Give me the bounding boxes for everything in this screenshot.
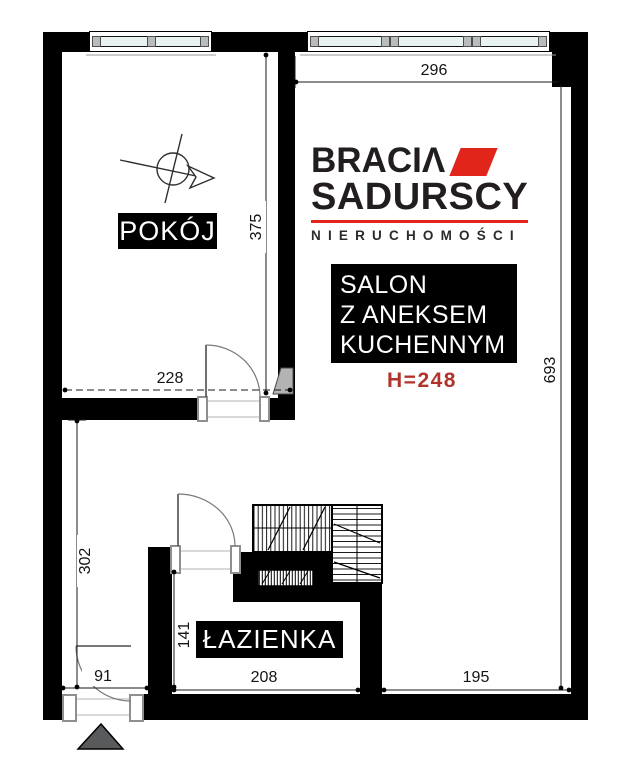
door-jamb-room1-right	[259, 396, 270, 422]
door-jamb-entry-right	[129, 694, 144, 722]
window-mullion	[381, 36, 390, 47]
window-salon-glass	[310, 36, 547, 47]
dim-room1-height: 375	[248, 201, 266, 253]
salon-label: SALON Z ANEKSEM KUCHENNYM	[331, 264, 517, 363]
window-salon	[307, 31, 550, 52]
room1-label-text: POKÓJ	[119, 216, 216, 247]
dim-bathroom-width: 208	[236, 669, 292, 687]
wall-bottom	[144, 694, 588, 720]
salon-label-line3: KUCHENNYM	[340, 330, 517, 360]
logo-line1-text: BRACIΛ	[311, 142, 445, 179]
entry-arrow-icon	[78, 724, 123, 749]
dim-bathroom-height: 141	[176, 610, 194, 660]
door-jamb-room1-left	[197, 396, 208, 422]
agency-logo: BRACIΛ SADURSCY NIERUCHOMOŚCI	[311, 142, 528, 243]
bathroom-label: ŁAZIENKA	[196, 621, 343, 658]
logo-line2: SADURSCY	[311, 179, 528, 216]
dim-room1-width: 228	[146, 370, 194, 388]
dim-hall-height: 302	[77, 535, 95, 587]
logo-line1: BRACIΛ	[311, 142, 528, 179]
window-cap	[310, 36, 319, 47]
room1-label: POKÓJ	[118, 213, 217, 249]
door-jamb-bathroom-right	[230, 545, 241, 574]
window-mullion	[147, 36, 156, 47]
window-mullion	[463, 36, 472, 47]
wall-right	[571, 32, 588, 720]
wall-left	[43, 32, 62, 720]
wall-bathroom-right	[360, 568, 382, 694]
door-jamb-entry-left	[62, 694, 77, 722]
window-cap	[92, 36, 101, 47]
dim-salon-bottom-width: 195	[448, 669, 504, 687]
logo-red-parallelogram-icon	[450, 148, 498, 176]
bathroom-label-text: ŁAZIENKA	[203, 624, 337, 655]
dim-salon-width: 296	[408, 62, 460, 80]
ceiling-height-label: H=248	[372, 369, 472, 393]
logo-tagline: NIERUCHOMOŚCI	[311, 228, 528, 243]
door-bathroom	[178, 494, 235, 546]
door-jamb-bathroom-left	[170, 545, 181, 574]
salon-label-line2: Z ANEKSEM	[340, 300, 517, 330]
door-room1	[206, 345, 260, 397]
window-room1	[89, 31, 212, 52]
floor-plan: 296 375 228 693 302 141 91 208 195 POKÓJ…	[0, 0, 626, 768]
wall-room1-bottom-left	[43, 398, 207, 420]
fixture-counter-horizontal	[253, 505, 332, 552]
dim-entry-width: 91	[82, 668, 124, 686]
window-mullion	[472, 36, 481, 47]
window-cap	[538, 36, 547, 47]
north-arrow-icon	[120, 134, 214, 203]
dim-salon-height: 693	[542, 344, 560, 396]
salon-label-line1: SALON	[340, 270, 517, 300]
window-mullion	[390, 36, 399, 47]
wall-bathroom-left	[148, 547, 172, 694]
window-cap	[200, 36, 209, 47]
wall-room1-salon-divider	[278, 32, 295, 420]
logo-red-rule	[311, 220, 528, 223]
